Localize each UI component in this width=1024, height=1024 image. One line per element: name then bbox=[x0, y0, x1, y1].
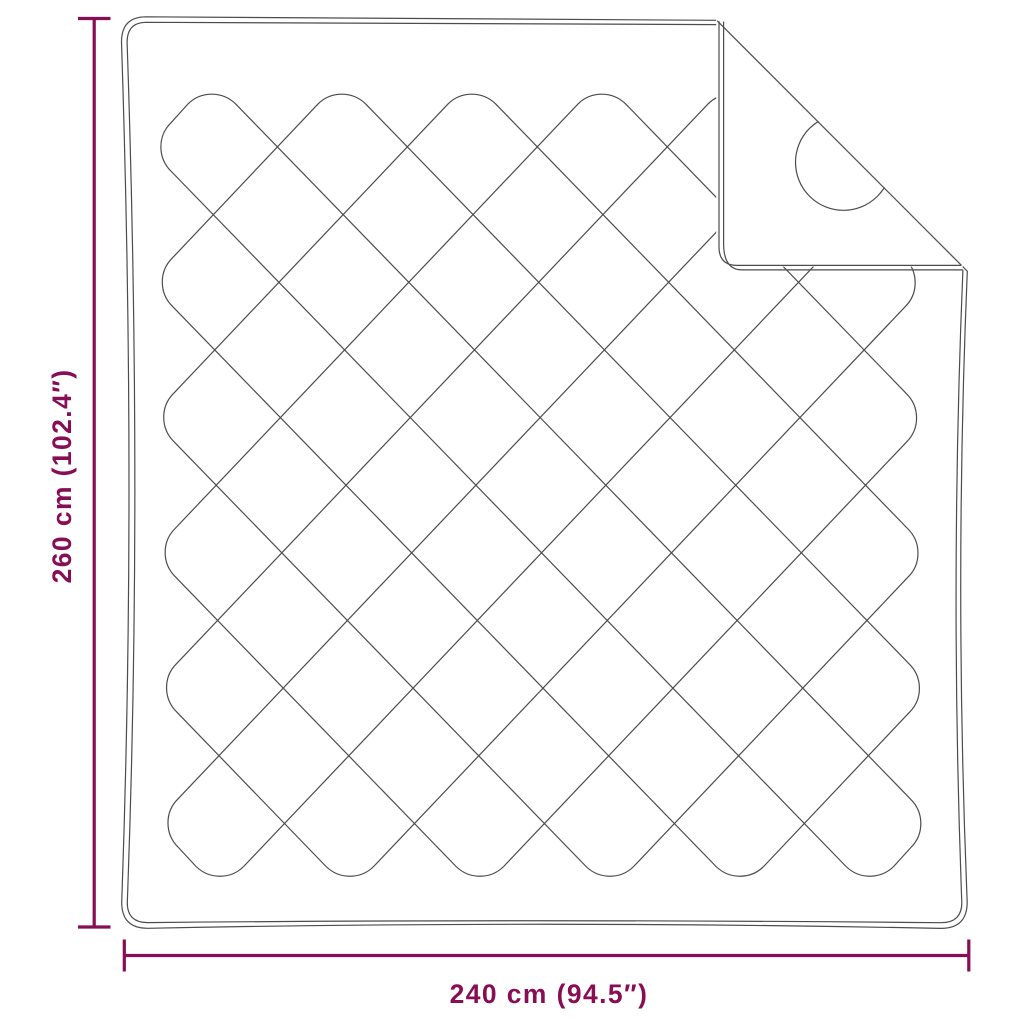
svg-text:260 cm (102.4″): 260 cm (102.4″) bbox=[47, 368, 77, 583]
svg-text:240 cm (94.5″): 240 cm (94.5″) bbox=[450, 979, 649, 1009]
